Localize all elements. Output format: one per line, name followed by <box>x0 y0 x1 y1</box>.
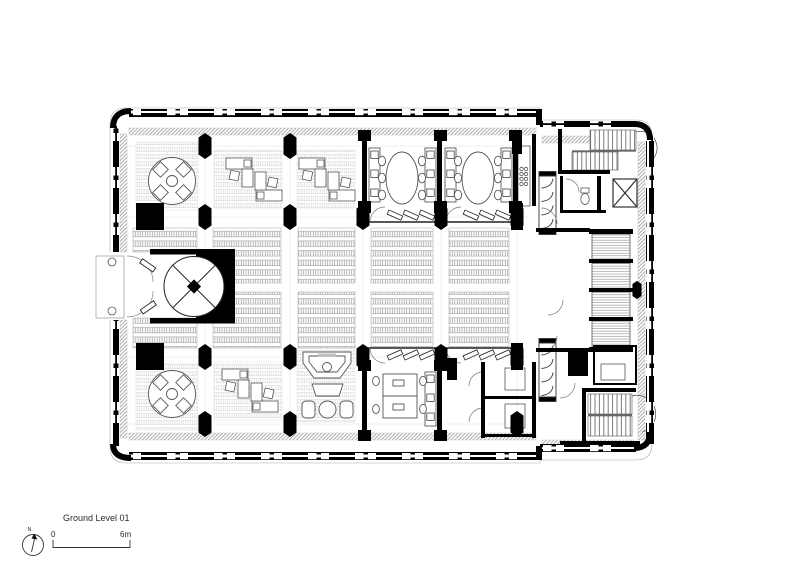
facade-wing-bottom <box>540 444 636 452</box>
scale-bar: 0 6m <box>51 530 131 548</box>
round-meeting-table <box>149 371 196 418</box>
meeting-room-a <box>369 148 436 204</box>
oval-meeting-table <box>378 152 425 204</box>
main-entrance <box>96 249 235 324</box>
level-title: Ground Level 01 <box>63 513 130 523</box>
north-arrow: N <box>23 527 44 556</box>
storage-cabinet-tall <box>539 339 556 402</box>
round-meeting-table <box>149 158 196 205</box>
floor-plan-drawing: N Ground Level 01 0 6m <box>0 0 800 565</box>
storage-cabinet-tall <box>539 172 556 235</box>
corner-top-left <box>113 111 131 128</box>
storage-cabinet <box>425 148 436 202</box>
facade-bottom <box>129 452 537 460</box>
scale-start-label: 0 <box>51 530 56 539</box>
corner-bottom-left <box>113 444 131 458</box>
facade-wing-top <box>540 121 636 129</box>
scale-end-label: 6m <box>120 530 131 539</box>
facade-left-lower <box>111 320 119 446</box>
meeting-room-b <box>445 148 512 204</box>
elevator-bank <box>589 229 642 352</box>
wc-room-top <box>560 176 606 213</box>
wc-toilet <box>581 188 589 205</box>
storage-cabinet <box>501 148 512 202</box>
facade-left-upper <box>111 126 119 252</box>
oval-meeting-table <box>454 152 501 204</box>
north-label: N <box>28 527 32 533</box>
facade-right <box>646 136 654 444</box>
pantry-counter <box>518 146 530 206</box>
meeting-room-c <box>373 372 436 426</box>
elevator-top <box>613 179 637 207</box>
floor-plan-page: N Ground Level 01 0 6m <box>0 0 800 565</box>
facade-top <box>129 109 537 117</box>
